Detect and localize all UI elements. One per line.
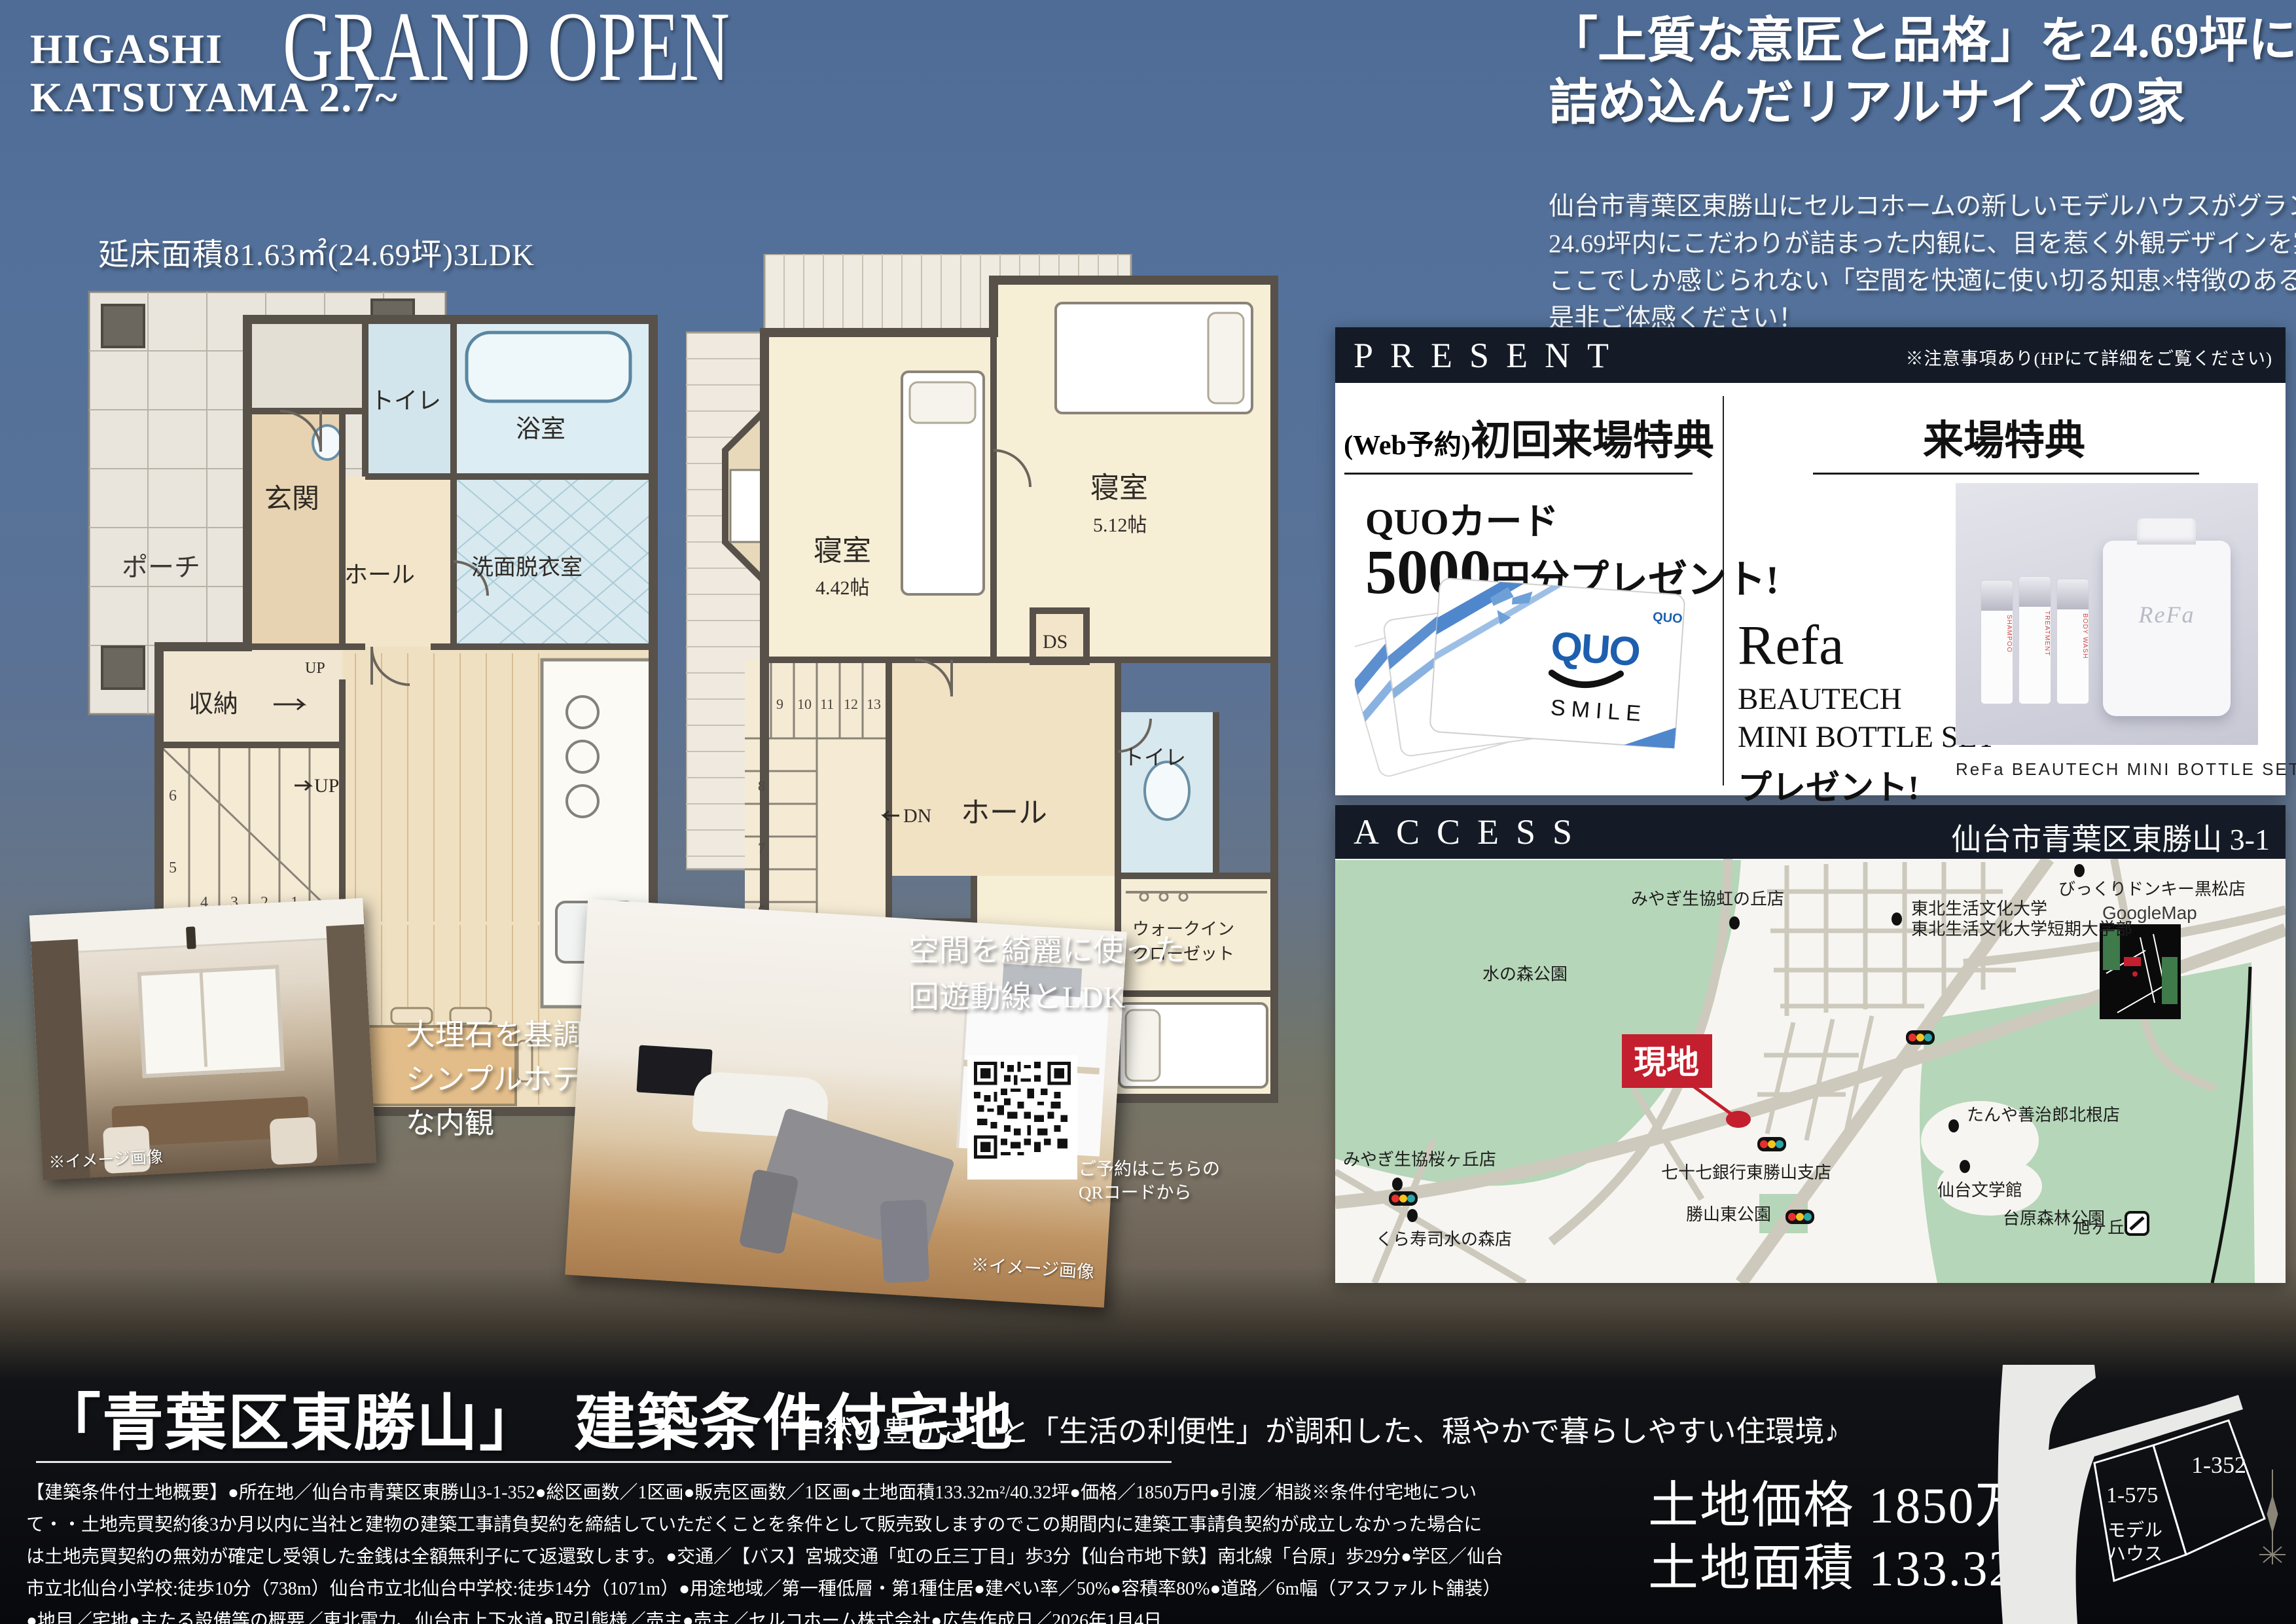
- lot-b-label: 1-352: [2191, 1452, 2246, 1478]
- stair-num: 11: [820, 696, 834, 712]
- stair-num: 8: [758, 778, 765, 794]
- lot-a-sub2: ハウス: [2108, 1544, 2162, 1564]
- present-panel: PRESENT ※注意事項あり(HPにて詳細をご覧ください) (Web予約)初回…: [1335, 327, 2286, 795]
- bathtub: [467, 333, 630, 401]
- first-visit-title: 初回来場特典: [1471, 419, 1714, 463]
- site-label: 現地: [1634, 1044, 1699, 1081]
- qr-code: [967, 1055, 1077, 1180]
- visit-benefit-title: 来場特典: [1723, 407, 2286, 466]
- qr-caption: ご予約はこちらの QRコードから: [1079, 1157, 1220, 1205]
- bottle-cap: [1981, 581, 2013, 611]
- quo-logo: QUO: [1549, 624, 1641, 675]
- refa-pouch-logo: ReFa: [2103, 601, 2231, 628]
- toilet-fixture-2f: [1145, 762, 1189, 820]
- headline-line1: 「上質な意匠と品格」を24.69坪に: [1549, 10, 2296, 73]
- label-storage: 収納: [188, 691, 238, 718]
- label-toilet-1f: トイレ: [370, 388, 441, 414]
- label-up: UP: [314, 775, 339, 797]
- bottom-subtitle: 「自然の豊かさ」と「生活の利便性」が調和した、穏やかで暮らしやすい住環境♪: [764, 1407, 1839, 1450]
- image-note-right: ※イメージ画像: [971, 1250, 1095, 1283]
- quo-cards: QUO SMILE QUO: [1355, 563, 1708, 792]
- legal-line: 市立北仙台小学校:徒歩10分（738m）仙台市立北仙台中学校:徒歩14分（107…: [26, 1573, 1503, 1605]
- label-porch: ポーチ: [122, 552, 200, 582]
- headline: 「上質な意匠と品格」を24.69坪に 詰め込んだリアルサイズの家: [1549, 10, 2296, 134]
- chair: [738, 1168, 799, 1255]
- caption-right: 空間を綺麗に使った 回遊動線とLDK: [908, 928, 1185, 1020]
- label-sakuragaoka: みやぎ生協桜ヶ丘店: [1343, 1149, 1496, 1169]
- underline-right: [1813, 473, 2199, 475]
- legal-line: ●地目／宅地●主たる設備等の概要／東北電力、仙台市上下水道●取引態様／売主●売主…: [26, 1605, 1503, 1624]
- present-note: ※注意事項あり(HPにて詳細をご覧ください): [1906, 344, 2273, 370]
- interior-photo-left: ※イメージ画像: [29, 898, 376, 1180]
- label-kurazushi: くら寿司水の森店: [1376, 1229, 1512, 1249]
- caption-right-line: 空間を綺麗に使った: [908, 928, 1185, 975]
- entry-step: [247, 319, 365, 411]
- qr-pattern: [974, 1062, 1071, 1159]
- refa-bottle-bodywash: BODY WASH: [2056, 579, 2089, 704]
- present-header-bar: PRESENT ※注意事項あり(HPにて詳細をご覧ください): [1335, 327, 2286, 383]
- label-asahigaoka: 旭ヶ丘: [2073, 1218, 2125, 1237]
- access-panel: ACCESS 仙台市青葉区東勝山 3-1: [1335, 805, 2286, 1283]
- bottom-divider: [36, 1461, 1172, 1463]
- underline-left: [1344, 473, 1693, 475]
- chair: [270, 1117, 318, 1165]
- chair: [880, 1199, 929, 1283]
- label-hall-1f: ホール: [344, 562, 415, 588]
- lot-parcel-b: [2153, 1420, 2265, 1555]
- legal-line: て・・土地売買契約後3か月以内に当社と建物の建築工事請負契約を締結していただくこ…: [26, 1509, 1503, 1541]
- access-address: 仙台市青葉区東勝山 3-1: [1951, 816, 2270, 859]
- chandelier: [186, 926, 196, 949]
- stair-num: 10: [797, 696, 812, 712]
- stair-num: 5: [169, 859, 177, 876]
- label-washroom: 洗面脱衣室: [471, 555, 583, 580]
- lot-a-label: 1-575: [2106, 1483, 2158, 1507]
- refa-caption: ReFa BEAUTECH MINI BOTTLE SET: [1956, 759, 2258, 780]
- flyer-page: HIGASHI KATSUYAMA 2.7~ GRAND OPEN 「上質な意匠…: [0, 0, 2296, 1624]
- lead-line: ここでしか感じられない「空間を快適に使い切る知恵×特徴のある外観」を: [1549, 263, 2296, 300]
- stair-num: 13: [867, 696, 881, 712]
- stair-num: 12: [844, 696, 858, 712]
- refa-bottle-treatment: TREATMENT: [2018, 576, 2051, 704]
- legal-block: 【建築条件付土地概要】●所在地／仙台市青葉区東勝山3-1-352●総区画数／1区…: [26, 1477, 1503, 1624]
- refa-product-photo: ReFa SHAMPOO TREATMENT BODY WASH: [1956, 483, 2258, 745]
- label-up-small: UP: [305, 660, 325, 677]
- access-map: GoogleMap 現地: [1335, 859, 2286, 1283]
- label-bedroom1-size: 4.42帖: [816, 577, 870, 599]
- ceiling-molding: [29, 898, 365, 956]
- hall-2f: [889, 660, 1118, 876]
- label-mizunomori: 水の森公園: [1482, 964, 1568, 984]
- label-hall-2f: ホール: [961, 797, 1047, 829]
- bottle-cap: [2019, 577, 2051, 607]
- toilet-fixture-1f: [313, 425, 342, 460]
- label-dn: DN: [903, 805, 931, 827]
- bottle-cap: [2057, 579, 2089, 609]
- floor-area-label: 延床面積81.63㎡(24.69坪)3LDK: [98, 229, 535, 274]
- label-bedroom1: 寝室: [814, 535, 871, 567]
- window: [137, 965, 285, 1078]
- label-univ1: 東北生活文化大学: [1911, 899, 2047, 918]
- refa-bottle-shampoo: SHAMPOO: [1981, 580, 2013, 704]
- access-header-bar: ACCESS 仙台市青葉区東勝山 3-1: [1335, 805, 2286, 859]
- lot-a-sub1: モデル: [2108, 1520, 2162, 1541]
- lead-line: 仙台市青葉区東勝山にセルコホームの新しいモデルハウスがグランドオープン🎉: [1549, 189, 2296, 226]
- stair-num: 9: [776, 696, 783, 712]
- label-bedroom2: 寝室: [1090, 472, 1148, 504]
- lead-paragraph: 仙台市青葉区東勝山にセルコホームの新しいモデルハウスがグランドオープン🎉 24.…: [1549, 189, 2296, 338]
- present-title: PRESENT: [1354, 335, 1626, 376]
- label-bank: 七十七銀行東勝山支店: [1661, 1163, 1831, 1182]
- caption-right-line: 回遊動線とLDK: [908, 975, 1185, 1021]
- legal-line: 【建築条件付土地概要】●所在地／仙台市青葉区東勝山3-1-352●総区画数／1区…: [26, 1477, 1503, 1509]
- qr-caption-line2: QRコードから: [1079, 1181, 1220, 1204]
- label-bath: 浴室: [516, 416, 565, 443]
- label-toilet-2f: トイレ: [1123, 746, 1186, 769]
- label-univ2: 東北生活文化大学短期大学部: [1911, 919, 2132, 939]
- label-katsuyama-park: 勝山東公園: [1686, 1204, 1771, 1224]
- lot-plan: 1-575 モデル ハウス 1-352: [1898, 1365, 2291, 1624]
- quo-logo-small: QUO: [1652, 610, 1683, 626]
- access-title: ACCESS: [1354, 812, 1589, 852]
- label-bedroom2-size: 5.12帖: [1093, 514, 1147, 536]
- legal-line: は土地売買契約の無効が確定し受領した金銭は全額無利子にて返還致します。●交通／【…: [26, 1541, 1503, 1573]
- quo-card-front: QUO SMILE QUO: [1429, 578, 1685, 749]
- web-benefit-title: (Web予約)初回来場特典: [1335, 407, 1723, 466]
- label-bikkuri: びっくりドンキー黒松店: [2058, 879, 2246, 899]
- label-ds-top: DS: [1043, 631, 1067, 653]
- curtain-left: [31, 939, 90, 1180]
- metro-icon: [2126, 1212, 2148, 1235]
- stair-num: 6: [169, 787, 177, 804]
- page-title: GRAND OPEN: [283, 0, 730, 103]
- label-bungakukan: 仙台文学館: [1937, 1180, 2022, 1200]
- label-nijinooka: みやぎ生協虹の丘店: [1631, 889, 1784, 909]
- lead-line: 24.69坪内にこだわりが詰まった内観に、目を惹く外観デザインを実現。: [1549, 226, 2296, 263]
- stair-num: 7: [758, 840, 765, 856]
- qr-caption-line1: ご予約はこちらの: [1079, 1157, 1220, 1181]
- web-tag: (Web予約): [1344, 431, 1471, 461]
- refa-pouch: ReFa: [2103, 541, 2231, 716]
- label-entrance: 玄関: [264, 484, 319, 514]
- headline-line2: 詰め込んだリアルサイズの家: [1549, 73, 2296, 135]
- label-tanya: たんや善治郎北根店: [1967, 1105, 2120, 1125]
- pouch-gather: [2137, 518, 2196, 545]
